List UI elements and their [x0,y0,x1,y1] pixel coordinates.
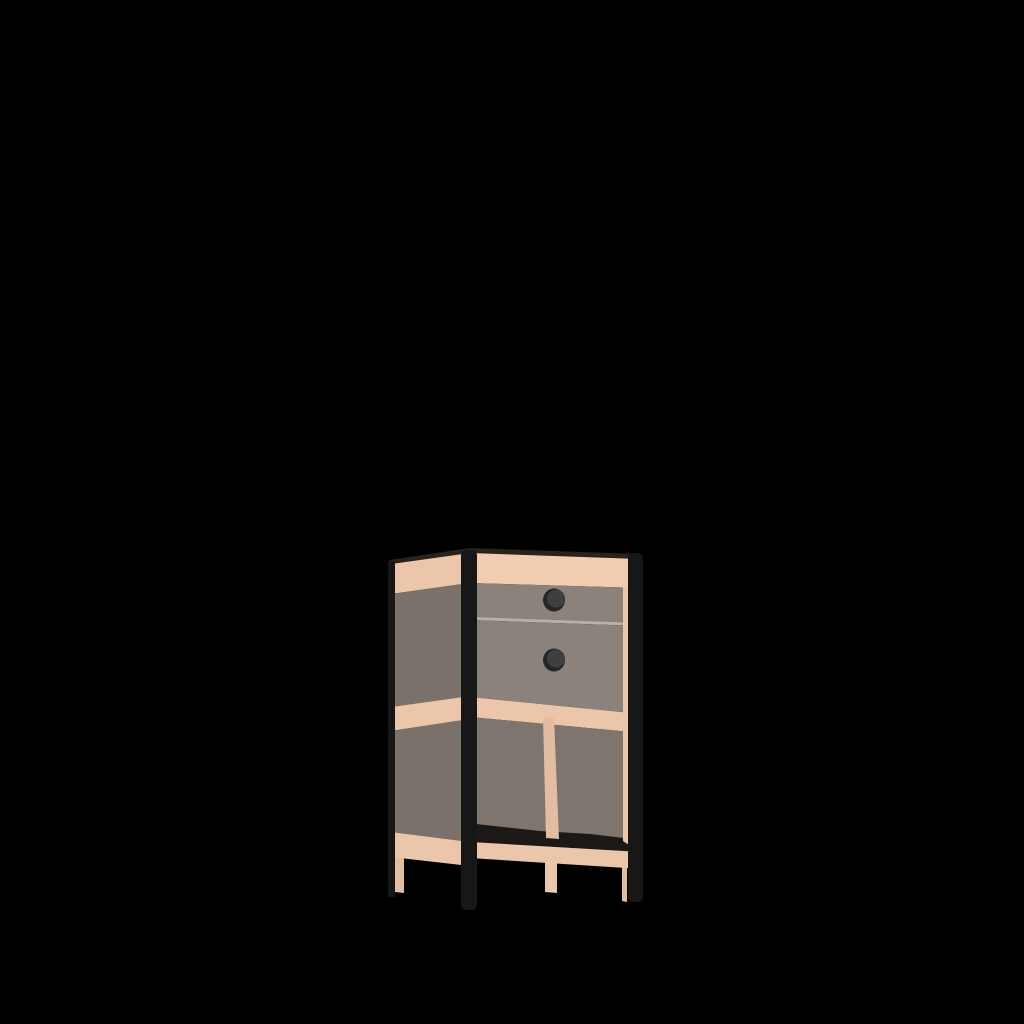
lower-drawer-knob-face [547,650,565,668]
upper-drawer-knob-face [547,590,565,608]
side-panel-upper [391,583,470,707]
front-top-rail [470,553,641,588]
black-background [0,0,1024,1024]
back-left-metal-leg [388,561,395,897]
front-left-metal-leg [461,550,477,910]
furniture-render [0,0,1024,1024]
side-back-wood-leg [395,857,404,893]
front-middle-wood-leg [545,862,557,893]
side-panel-lower [391,719,470,842]
front-right-metal-leg [628,553,643,902]
